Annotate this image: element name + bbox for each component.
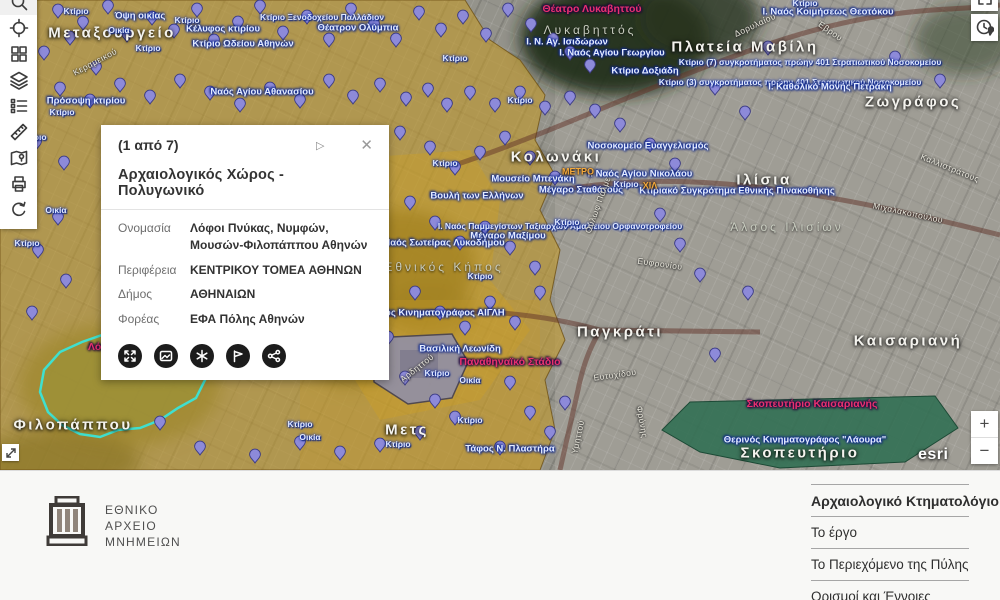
locate-clock-icon <box>975 18 994 37</box>
field-value: Λόφοι Πνύκας, Νυμφών, Μουσών-Φιλοπάππου … <box>190 220 373 255</box>
popup-field-row: ΦορέαςΕΦΑ Πόλης Αθηνών <box>118 311 373 328</box>
popup-field-row: ΠεριφέρειαΚΕΝΤΡΙΚΟΥ ΤΟΜΕΑ ΑΘΗΝΩΝ <box>118 262 373 279</box>
footer-nav: Αρχαιολογικό ΚτηματολόγιοΤο έργοΤο Περιε… <box>811 484 969 600</box>
field-value: ΑΘΗΝΑΙΩΝ <box>190 286 373 303</box>
zoom-out-button[interactable]: − <box>971 438 998 464</box>
zoom-control: + − <box>971 411 998 464</box>
refresh-icon <box>9 200 29 220</box>
media-icon <box>159 349 173 363</box>
footer-link[interactable]: Το Περιεχόμενο της Πύλης <box>811 549 969 581</box>
divider <box>101 209 389 210</box>
field-label: Φορέας <box>118 311 190 328</box>
extent-button[interactable] <box>2 444 19 461</box>
legend-icon <box>9 96 29 116</box>
asterisk-icon <box>195 349 209 363</box>
asterisk-action-button[interactable] <box>190 344 214 368</box>
feature-popup: (1 από 7) ▷ ✕ Αρχαιολογικός Χώρος - Πολυ… <box>101 125 389 380</box>
brand-block: ΕΘΝΙΚΟ ΑΡΧΕΙΟ ΜΝΗΜΕΙΩΝ <box>45 496 181 551</box>
close-icon[interactable]: ✕ <box>360 138 373 153</box>
next-feature-button[interactable]: ▷ <box>316 139 324 152</box>
map-toolbar <box>0 0 37 229</box>
map-attribution: esri <box>918 446 948 464</box>
basemap-icon <box>9 44 29 64</box>
popup-field-row: ΔήμοςΑΘΗΝΑΙΩΝ <box>118 286 373 303</box>
share-icon <box>267 349 281 363</box>
footer-link[interactable]: Το έργο <box>811 517 969 549</box>
layers-button[interactable] <box>0 67 37 93</box>
media-action-button[interactable] <box>154 344 178 368</box>
app-window: ΜεταξουργείοΚολωνάκιΠλατεία ΜαβίληΖωγράφ… <box>0 0 1000 600</box>
legend-button[interactable] <box>0 93 37 119</box>
zoom-in-button[interactable]: + <box>971 411 998 438</box>
map-pin-button[interactable] <box>0 145 37 171</box>
field-label: Περιφέρεια <box>118 262 190 279</box>
field-label: Δήμος <box>118 286 190 303</box>
zoom-to-icon <box>123 349 137 363</box>
field-value: ΕΦΑ Πόλης Αθηνών <box>190 311 373 328</box>
refresh-button[interactable] <box>0 197 37 223</box>
search-button[interactable] <box>0 0 37 15</box>
footer-link[interactable]: Αρχαιολογικό Κτηματολόγιο <box>811 485 969 517</box>
monument-pin[interactable] <box>503 3 514 17</box>
locate-button[interactable] <box>971 14 998 41</box>
popup-field-row: ΟνομασίαΛόφοι Πνύκας, Νυμφών, Μουσών-Φιλ… <box>118 220 373 255</box>
layers-icon <box>9 70 29 90</box>
popup-fields: ΟνομασίαΛόφοι Πνύκας, Νυμφών, Μουσών-Φιλ… <box>118 220 373 328</box>
column-logo-icon <box>45 496 89 546</box>
footer-link[interactable]: Ορισμοί και Έννοιες <box>811 581 969 600</box>
locate-button[interactable] <box>0 15 37 41</box>
brand-text: ΕΘΝΙΚΟ ΑΡΧΕΙΟ ΜΝΗΜΕΙΩΝ <box>105 502 181 551</box>
popup-pager: (1 από 7) <box>118 137 179 153</box>
collapse-icon <box>976 0 994 7</box>
field-label: Ονομασία <box>118 220 190 255</box>
print-icon <box>9 174 29 194</box>
basemap-button[interactable] <box>0 41 37 67</box>
zoom-to-action-button[interactable] <box>118 344 142 368</box>
popup-title: Αρχαιολογικός Χώρος - Πολυγωνικό <box>118 167 373 199</box>
print-button[interactable] <box>0 171 37 197</box>
map-pin-icon <box>9 148 29 168</box>
search-icon <box>9 0 29 12</box>
collapse-button[interactable] <box>971 0 998 11</box>
flag-icon <box>231 349 245 363</box>
page-footer: ΕΘΝΙΚΟ ΑΡΧΕΙΟ ΜΝΗΜΕΙΩΝ Αρχαιολογικό Κτημ… <box>0 470 1000 600</box>
measure-icon <box>9 122 29 142</box>
field-value: ΚΕΝΤΡΙΚΟΥ ΤΟΜΕΑ ΑΘΗΝΩΝ <box>190 262 373 279</box>
share-action-button[interactable] <box>262 344 286 368</box>
extent-arrows-icon <box>5 447 17 459</box>
measure-button[interactable] <box>0 119 37 145</box>
flag-action-button[interactable] <box>226 344 250 368</box>
popup-actions <box>118 344 373 368</box>
locate-icon <box>9 18 29 38</box>
